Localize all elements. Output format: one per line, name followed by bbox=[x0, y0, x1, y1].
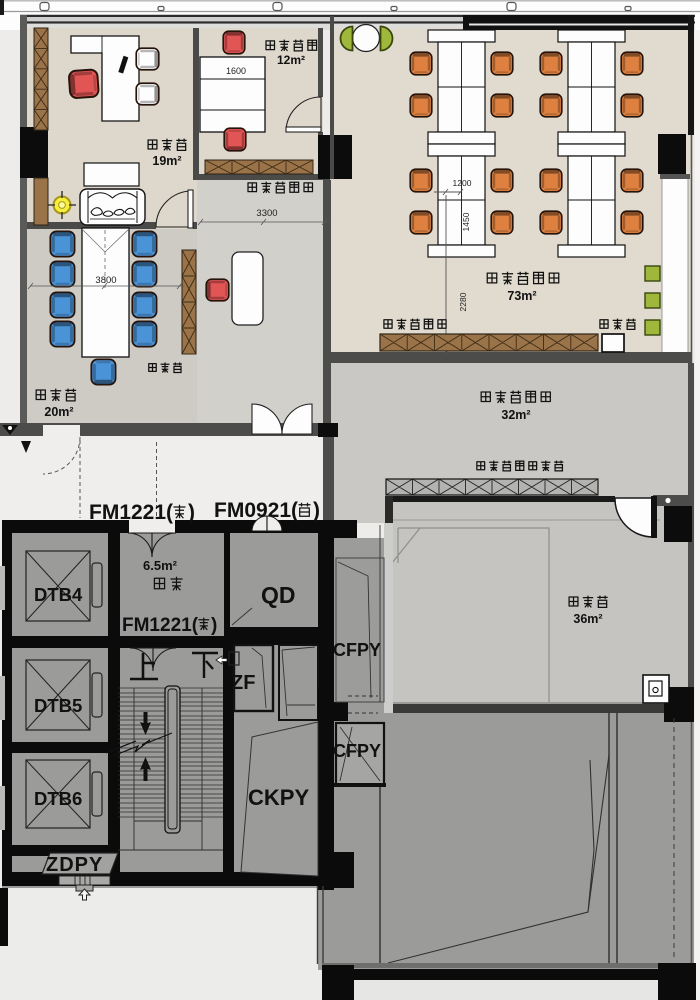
svg-text:73m²: 73m² bbox=[507, 289, 536, 303]
svg-text:DTB4: DTB4 bbox=[34, 584, 83, 605]
svg-text:QD: QD bbox=[261, 582, 296, 608]
svg-text:12m²: 12m² bbox=[277, 53, 305, 67]
svg-text:CFPY: CFPY bbox=[333, 741, 381, 761]
svg-text:1600: 1600 bbox=[226, 66, 246, 76]
svg-text:6.5m²: 6.5m² bbox=[143, 558, 178, 573]
svg-text:32m²: 32m² bbox=[501, 408, 530, 422]
svg-text:DTB5: DTB5 bbox=[34, 695, 82, 716]
svg-text:): ) bbox=[211, 615, 217, 636]
svg-text:CKPY: CKPY bbox=[248, 785, 309, 810]
svg-text:2280: 2280 bbox=[458, 292, 468, 311]
svg-text:36m²: 36m² bbox=[573, 612, 602, 626]
svg-text:): ) bbox=[188, 501, 195, 524]
svg-text:FM1221(: FM1221( bbox=[122, 615, 199, 636]
svg-text:): ) bbox=[313, 499, 320, 522]
svg-text:FM1221(: FM1221( bbox=[89, 501, 173, 524]
svg-text:DTB6: DTB6 bbox=[34, 788, 82, 809]
svg-text:3800: 3800 bbox=[95, 275, 116, 286]
svg-text:CFPY: CFPY bbox=[333, 640, 381, 660]
svg-text:FM0921(: FM0921( bbox=[214, 499, 298, 522]
svg-text:19m²: 19m² bbox=[152, 154, 181, 168]
svg-text:3300: 3300 bbox=[256, 208, 277, 219]
svg-text:20m²: 20m² bbox=[44, 405, 73, 419]
svg-text:1200: 1200 bbox=[453, 178, 472, 188]
svg-text:ZF: ZF bbox=[231, 672, 255, 694]
svg-text:1450: 1450 bbox=[461, 212, 471, 231]
svg-text:ZDPY: ZDPY bbox=[46, 854, 103, 876]
